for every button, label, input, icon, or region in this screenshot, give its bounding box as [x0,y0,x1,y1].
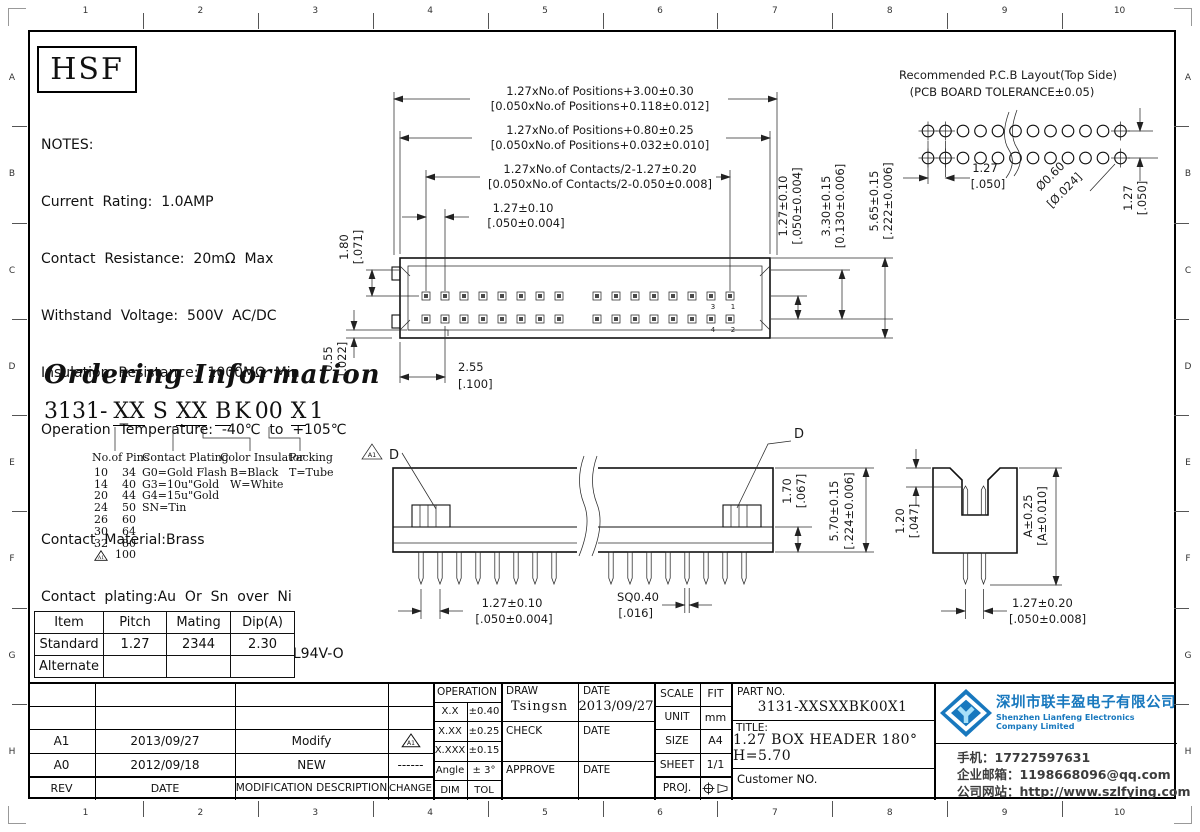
tol-dim: X.X [433,702,467,722]
dim-text: [0.050xNo.of Contacts/2-0.050±0.008] [488,177,712,191]
check-label: CHECK [506,725,542,737]
frame-row-label: B [1180,126,1196,222]
dim-text: 1.27xNo.of Positions+3.00±0.30 [506,84,694,98]
dim-text: 1.27xNo.of Contacts/2-1.27±0.20 [503,162,696,176]
frame-tick [12,415,27,416]
size-value: A4 [700,729,731,753]
dim-text: [.100] [458,377,493,391]
proj-label: PROJ. [654,776,700,800]
frame-tick [143,13,144,29]
dim-text: [.022] [335,342,349,377]
frame-col-label: 5 [488,808,603,818]
dim-text: [.016] [618,606,653,620]
dim-text: 1.20 [893,508,907,534]
frame-row-label: D [4,319,20,415]
rev-header: CHANGE [388,776,433,800]
frame-col-label: 7 [717,6,832,16]
frame-row-label: D [1180,319,1196,415]
frame-row-label: E [1180,415,1196,511]
pin-number: 3 [711,303,715,311]
frame-tick [488,13,489,29]
frame-tick [1174,415,1189,416]
rev-date: 2013/09/27 [95,729,235,753]
dim-text: 1.27xNo.of Positions+0.80±0.25 [506,123,694,137]
rev-desc: Modify [235,729,388,753]
frame-tick [832,801,833,817]
frame-tick [1174,511,1189,512]
frame-col-label: 10 [1062,6,1177,16]
rev-id: A0 [28,753,95,777]
operation-header: OPERATION [433,682,501,702]
dim-text: [.047] [907,504,921,539]
company-name-cn: 深圳市联丰盈电子有限公司 [996,691,1176,712]
pin-number: 4 [711,326,716,334]
dim-text: A±0.25 [1021,494,1035,537]
pin-number: 2 [731,326,735,334]
frame-row-label: A [4,30,20,126]
unit-label: UNIT [654,706,700,730]
frame-tick [1062,13,1063,29]
scale-label: SCALE [654,682,700,706]
dim-text: 1.70 [780,478,794,504]
dim-text: 3.30±0.15 [819,176,833,237]
frame-row-label: B [4,126,20,222]
frame-col-label: 4 [373,6,488,16]
frame-col-label: 4 [373,808,488,818]
unit-value: mm [700,706,731,730]
part-no-value: 3131-XXSXXBK00X1 [731,696,934,718]
frame-row-label: A [1180,30,1196,126]
frame-tick [603,13,604,29]
side-view-dimensions: 1.27±0.10 [.050±0.004] SQ0.40 [.016] 1.7… [398,468,874,626]
frame-col-label: 9 [947,6,1062,16]
frame-tick [12,511,27,512]
dim-text: [.071] [351,230,365,265]
frame-col-label: 6 [603,808,718,818]
dim-text: [.050±0.004] [790,167,804,244]
pcb-title: Recommended P.C.B Layout(Top Side) [899,68,1117,82]
a1-mark: A1 [368,451,377,459]
drawing-title: 1.27 BOX HEADER 180° H=5.70 [733,734,933,762]
date-label: DATE [583,725,610,737]
frame-tick [12,223,27,224]
end-view: 1.20 [.047] A±0.25 [A±0.010] 1.27±0.20 [… [893,449,1086,626]
top-view-dimensions: 1.27xNo.of Positions+3.00±0.30 [0.050xNo… [321,84,895,391]
frame-tick [12,608,27,609]
rev-change: ------ [388,753,433,777]
tol-val: ±0.25 [467,721,501,741]
ordering-connectors [115,427,300,451]
dim-text: [.050] [971,177,1006,191]
frame-tick [1174,126,1189,127]
frame-col-label: 1 [28,6,143,16]
dim-text: 5.70±0.15 [827,481,841,542]
rev-header: DATE [95,776,235,800]
frame-row-label: C [1180,223,1196,319]
dim-text: [.067] [794,474,808,509]
frame-tick [1174,319,1189,320]
dim-text: [.050±0.004] [475,612,552,626]
frame-tick [1174,704,1189,705]
detail-label-d: D [389,448,399,463]
frame-col-label: 5 [488,6,603,16]
frame-tick [373,13,374,29]
frame-col-label: 8 [832,808,947,818]
tol-dim: Angle [433,761,467,781]
dim-text: 1.27±0.10 [493,201,554,215]
frame-row-label: F [1180,511,1196,607]
dim-text: [0.130±0.006] [833,164,847,248]
dim-text: SQ0.40 [617,590,659,604]
tol-val: ±0.15 [467,741,501,761]
frame-tick [717,13,718,29]
frame-col-label: 7 [717,808,832,818]
detail-label-d: D [794,427,804,442]
frame-tick [12,126,27,127]
frame-tick [832,13,833,29]
pin-number: 1 [731,303,735,311]
dim-text: 1.27±0.10 [776,176,790,237]
frame-row-label: C [4,223,20,319]
frame-row-label: H [4,704,20,800]
company-website: 公司网站：http://www.szlfying.com [957,781,1191,800]
frame-tick [603,801,604,817]
rev-id: A1 [28,729,95,753]
tol-val: ±0.40 [467,702,501,722]
rev-date: 2012/09/18 [95,753,235,777]
draw-value: Tsingsn [501,694,578,718]
frame-col-label: 1 [28,808,143,818]
frame-tick [1174,223,1189,224]
date-label: DATE [583,764,610,776]
frame-tick [12,319,27,320]
frame-row-label: G [4,608,20,704]
pcb-subtitle: (PCB BOARD TOLERANCE±0.05) [910,85,1095,99]
dim-text: [.224±0.006] [842,472,856,549]
frame-tick [1174,608,1189,609]
dim-text: [.050] [1135,181,1149,216]
frame-col-label: 8 [832,6,947,16]
side-view: D D A1 [362,427,804,556]
frame-row-label: H [1180,704,1196,800]
frame-tick [12,704,27,705]
third-angle-projection-icon [700,776,731,800]
company-logo [939,687,993,743]
tol-val: ± 3° [467,761,501,781]
frame-tick [1062,801,1063,817]
rev-desc: NEW [235,753,388,777]
tol-dim: DIM [433,780,467,800]
dim-text: [.050±0.008] [1009,612,1086,626]
dim-text: [0.050xNo.of Positions+0.032±0.010] [491,138,709,152]
dim-text: 5.65±0.15 [867,171,881,232]
dim-text: 1.80 [337,234,351,260]
frame-tick [258,13,259,29]
frame-col-label: 6 [603,6,718,16]
rev-change-triangle-icon: A1 [388,729,433,753]
frame-col-label: 2 [143,808,258,818]
frame-tick [258,801,259,817]
dim-text: 1.27±0.10 [482,596,543,610]
sheet-value: 1/1 [700,753,731,777]
frame-tick [488,801,489,817]
tol-val: TOL [467,780,501,800]
customer-no-label: Customer NO. [737,772,817,786]
rev-header: MODIFICATION DESCRIPTION [235,776,388,800]
frame-col-label: 9 [947,808,1062,818]
dim-text: [A±0.010] [1035,486,1049,545]
frame-tick [947,801,948,817]
drawing-sheet: HSF NOTES: Current Rating: 1.0AMP Contac… [0,0,1200,832]
dim-text: 2.55 [458,360,484,374]
svg-text:A1: A1 [407,741,415,748]
frame-row-label: F [4,511,20,607]
frame-row-label: E [4,415,20,511]
frame-col-label: 3 [258,6,373,16]
rev-header: REV [28,776,95,800]
dim-text: 1.27±0.20 [1012,596,1073,610]
frame-tick [717,801,718,817]
dim-text: 0.55 [321,346,335,372]
frame-col-label: 3 [258,808,373,818]
draw-date-value: 2013/09/27 [578,694,654,718]
company-name-en: Shenzhen Lianfeng Electronics Company Li… [996,713,1178,731]
sheet-label: SHEET [654,753,700,777]
tol-dim: X.XXX [433,741,467,761]
dim-text: [0.050xNo.of Positions+0.118±0.012] [491,99,709,113]
frame-col-label: 10 [1062,808,1177,818]
frame-tick [143,801,144,817]
approve-label: APPROVE [506,764,555,776]
size-label: SIZE [654,729,700,753]
dim-text: [.222±0.006] [881,162,895,239]
frame-col-label: 2 [143,6,258,16]
frame-tick [947,13,948,29]
frame-row-label: G [1180,608,1196,704]
frame-tick [373,801,374,817]
tol-dim: X.XX [433,721,467,741]
pcb-layout: Recommended P.C.B Layout(Top Side) (PCB … [899,68,1158,215]
dim-text: 1.27 [972,161,998,175]
scale-value: FIT [700,682,731,706]
dim-text: 1.27 [1121,185,1135,211]
dim-text: [.050±0.004] [487,216,564,230]
